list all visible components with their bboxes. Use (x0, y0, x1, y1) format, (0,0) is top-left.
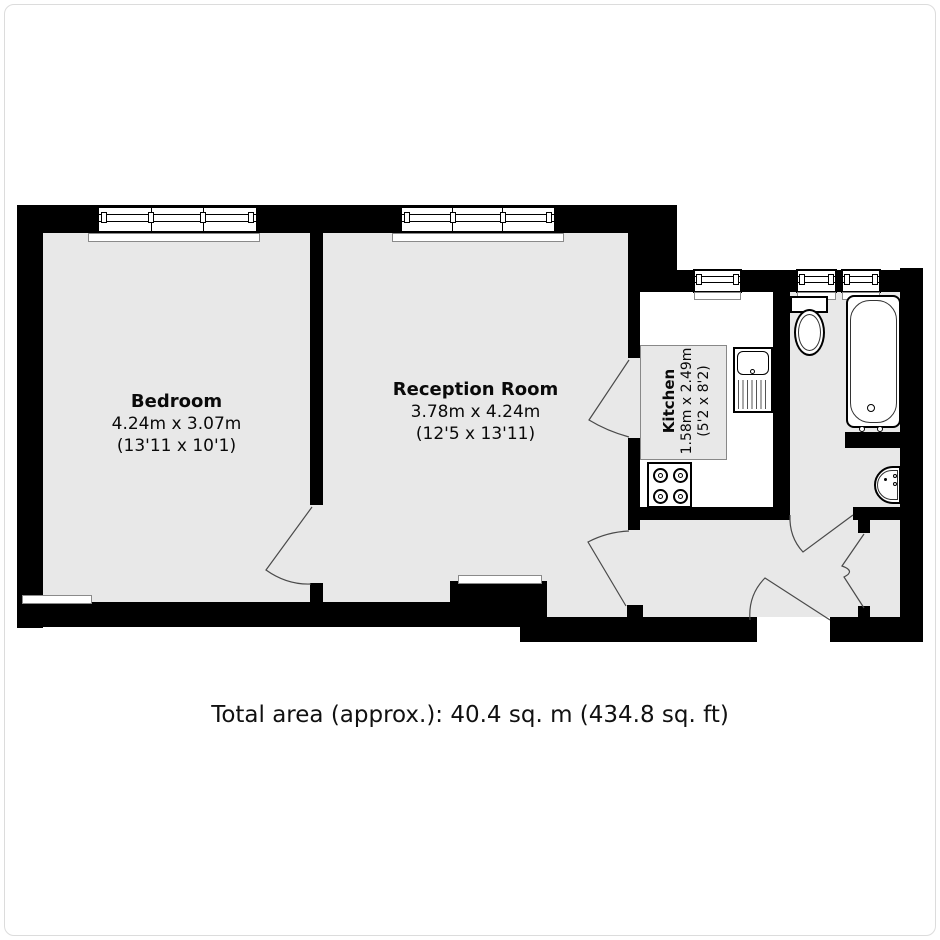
door-swings (0, 0, 940, 940)
reception-name: Reception Room (393, 379, 558, 400)
bedroom-dim-metric: 4.24m x 3.07m (112, 414, 242, 434)
bedroom-label: Bedroom 4.24m x 3.07m (13'11 x 10'1) (43, 391, 310, 457)
reception-label: Reception Room 3.78m x 4.24m (12'5 x 13'… (323, 379, 628, 445)
kitchen-dim-imperial: (5'2 x 8'2) (696, 365, 712, 436)
kitchen-dim-metric: 1.58m x 2.49m (679, 348, 695, 455)
reception-dim-imperial: (12'5 x 13'11) (416, 424, 535, 444)
reception-dim-metric: 3.78m x 4.24m (411, 402, 541, 422)
kitchen-name: Kitchen (660, 369, 678, 433)
cupboard-door (842, 534, 864, 608)
reception-door (588, 531, 629, 606)
bedroom-name: Bedroom (131, 391, 222, 412)
floor-plan: Bedroom 4.24m x 3.07m (13'11 x 10'1) Rec… (0, 0, 940, 940)
bedroom-dim-imperial: (13'11 x 10'1) (117, 436, 236, 456)
bathroom-door (790, 515, 853, 552)
entrance-door (750, 578, 830, 620)
bedroom-door (266, 507, 312, 584)
total-area-text: Total area (approx.): 40.4 sq. m (434.8 … (0, 702, 940, 728)
kitchen-label: Kitchen 1.58m x 2.49m (5'2 x 8'2) (661, 336, 713, 466)
